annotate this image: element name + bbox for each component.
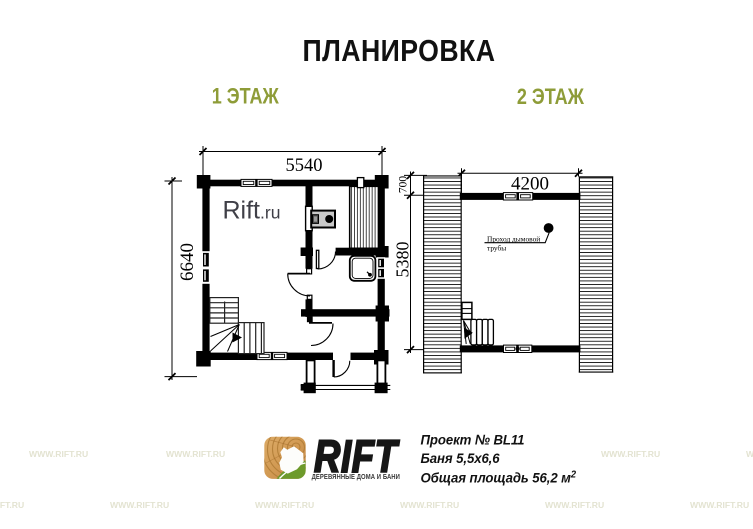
svg-text:5540: 5540 [286, 156, 323, 176]
svg-text:2 ЭТАЖ: 2 ЭТАЖ [517, 85, 585, 109]
svg-text:WWW.RIFT.RU: WWW.RIFT.RU [545, 500, 604, 510]
svg-text:5380: 5380 [393, 242, 413, 278]
svg-text:WWW.RIFT.RU: WWW.RIFT.RU [255, 500, 314, 510]
svg-text:WWW.RIFT.RU: WWW.RIFT.RU [746, 449, 753, 459]
svg-text:Баня 5,5х6,6: Баня 5,5х6,6 [421, 451, 500, 467]
svg-text:WWW.RIFT.RU: WWW.RIFT.RU [29, 449, 88, 459]
svg-text:ДЕРЕВЯННЫЕ ДОМА И БАНИ: ДЕРЕВЯННЫЕ ДОМА И БАНИ [312, 474, 400, 482]
svg-text:4200: 4200 [511, 174, 549, 195]
svg-text:Проект № BL11: Проект № BL11 [421, 432, 525, 448]
svg-text:трубы: трубы [487, 243, 506, 252]
svg-text:6640: 6640 [177, 243, 198, 281]
svg-text:WWW.RIFT.RU: WWW.RIFT.RU [166, 449, 225, 459]
svg-text:WWW.RIFT.RU: WWW.RIFT.RU [0, 500, 24, 510]
svg-text:WWW.RIFT.RU: WWW.RIFT.RU [400, 500, 459, 510]
svg-text:WWW.RIFT.RU: WWW.RIFT.RU [690, 500, 749, 510]
svg-text:Проход дымовой: Проход дымовой [487, 235, 540, 244]
svg-text:WWW.RIFT.RU: WWW.RIFT.RU [601, 449, 660, 459]
svg-text:WWW.RIFT.RU: WWW.RIFT.RU [110, 500, 169, 510]
svg-text:Общая площадь 56,2 м2: Общая площадь 56,2 м2 [421, 469, 577, 485]
svg-text:ПЛАНИРОВКА: ПЛАНИРОВКА [303, 34, 496, 68]
svg-text:700: 700 [398, 176, 410, 194]
svg-text:1 ЭТАЖ: 1 ЭТАЖ [212, 85, 280, 109]
